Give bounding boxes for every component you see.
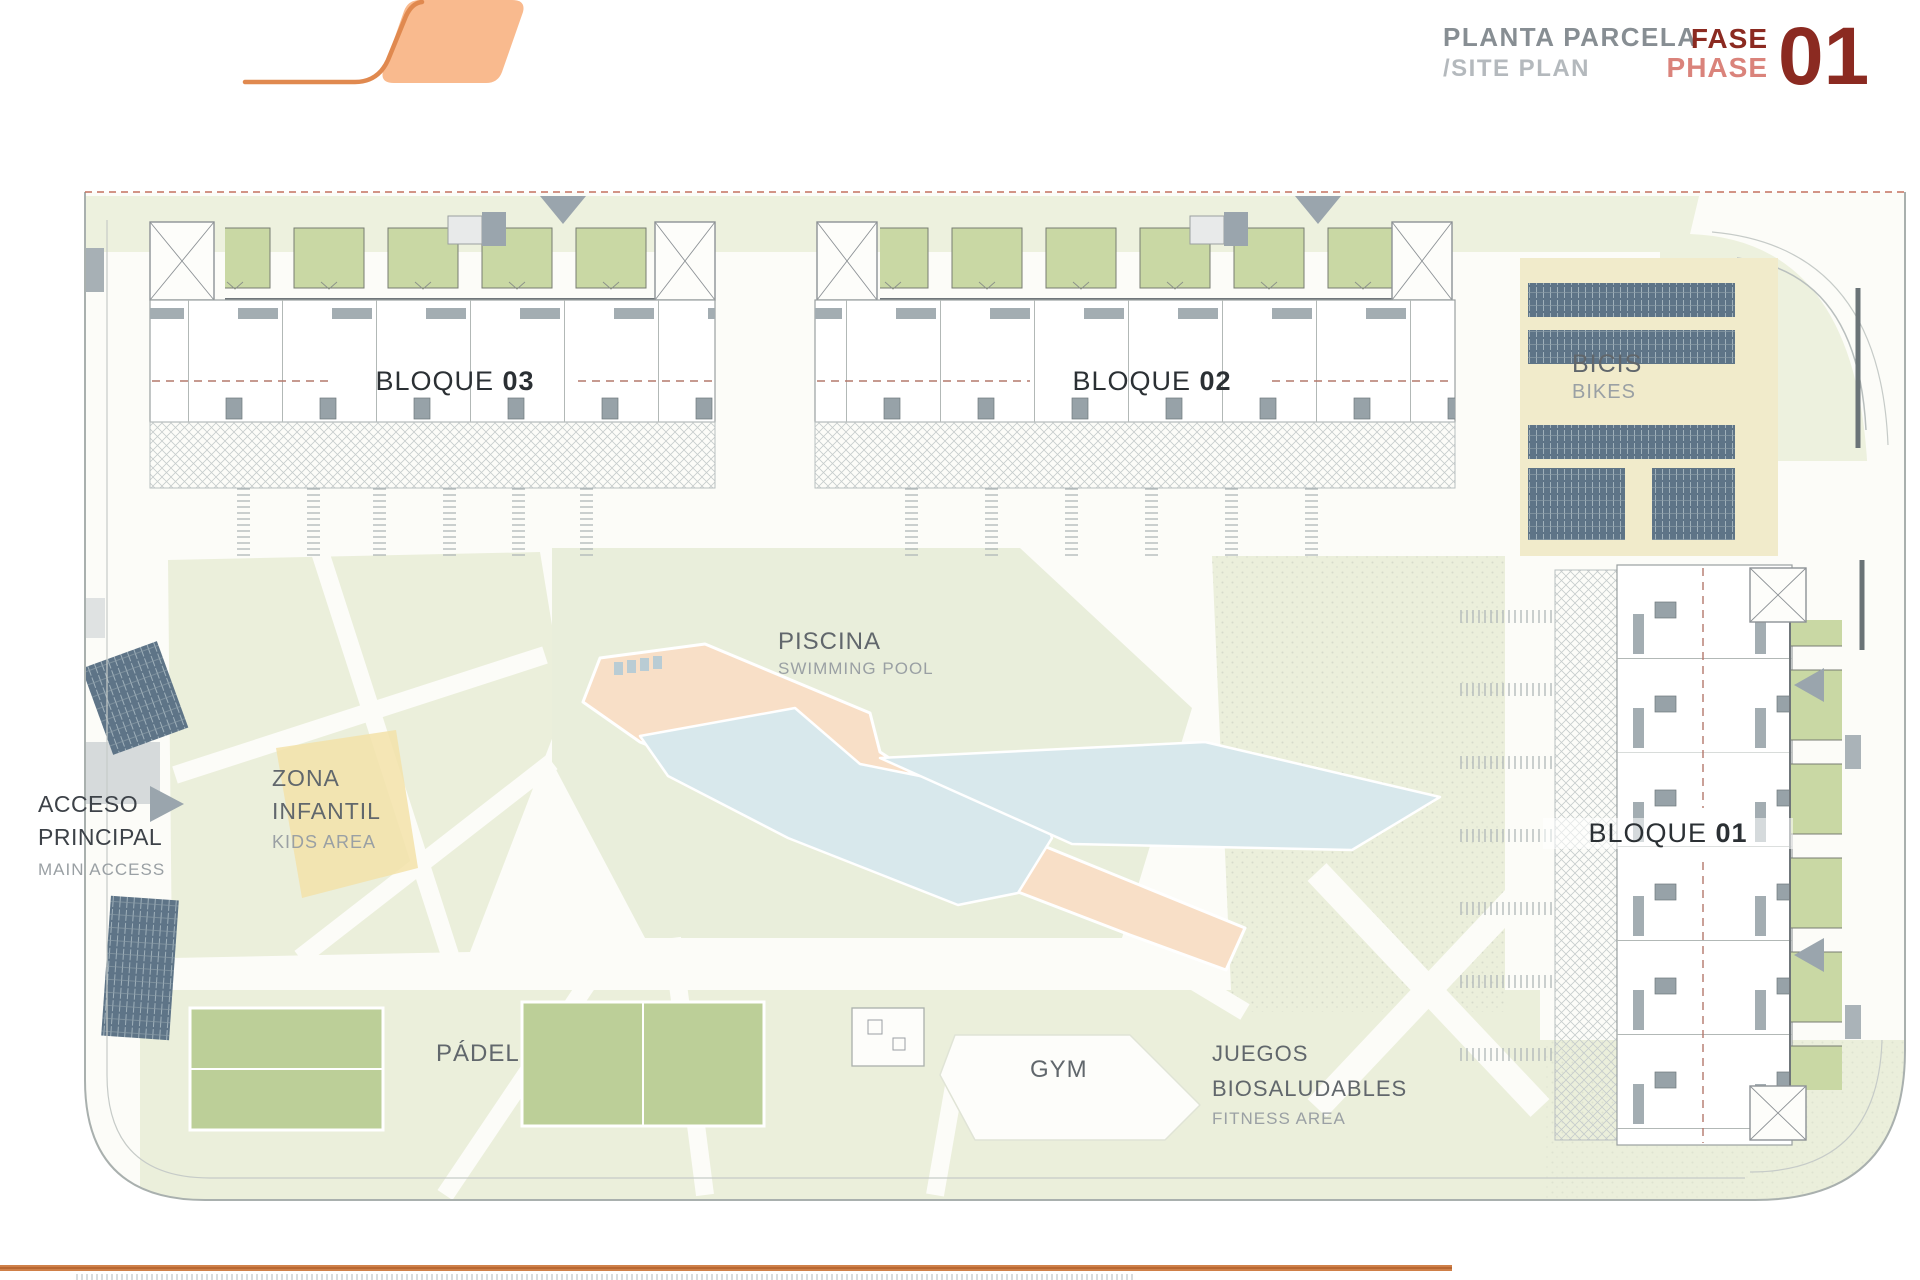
logo-mark-icon [245,0,524,83]
kids-area-label: ZONA INFANTIL KIDS AREA [272,762,381,853]
site-plan-page: { "header": { "title_primary": "PLANTA P… [0,0,1920,1280]
pool-label: PISCINA SWIMMING POOL [778,628,934,679]
street-parking-lower [101,896,179,1040]
site-plan-drawing [0,0,1920,1280]
sheet-edge [0,1268,1452,1280]
main-access-label: ACCESO PRINCIPAL MAIN ACCESS [38,788,165,880]
bloque-02-label: BLOQUE 02 [1027,366,1277,397]
bikes-label: BICIS BIKES [1572,350,1642,404]
gym-label: GYM [1030,1056,1088,1084]
phase-number: 01 [1778,18,1869,96]
bike-parking [1520,258,1778,556]
fitness-area-label: JUEGOS BIOSALUDABLES FITNESS AREA [1212,1036,1407,1129]
phase-label: FASE PHASE [1610,24,1768,82]
phase-label-es: FASE [1610,24,1768,53]
phase-label-en: PHASE [1610,53,1768,82]
bloque-03-label: BLOQUE 03 [330,366,580,397]
bloque-01-label: BLOQUE 01 [1543,818,1793,849]
padel-label: PÁDEL [436,1040,520,1068]
